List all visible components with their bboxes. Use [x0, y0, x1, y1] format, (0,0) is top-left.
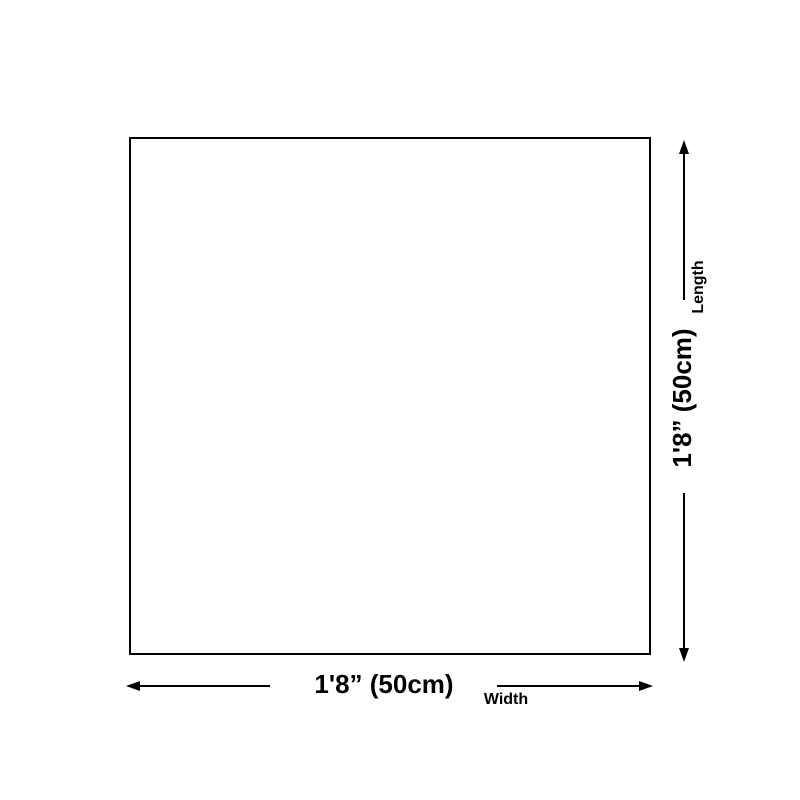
length-axis-label: Length — [689, 252, 709, 322]
arrowhead-left-icon — [126, 681, 140, 691]
arrowhead-down-icon — [679, 648, 689, 662]
width-dimension-line-right — [497, 685, 639, 687]
length-dimension-value: 1'8” (50cm) — [667, 318, 697, 478]
width-dimension-line-left — [140, 685, 270, 687]
width-dimension-value: 1'8” (50cm) — [274, 667, 494, 701]
product-outline-square — [129, 137, 651, 655]
length-dimension-line-upper — [683, 152, 685, 300]
dimension-diagram: Length 1'8” (50cm) 1'8” (50cm) Width — [0, 0, 800, 800]
length-dimension-line-lower — [683, 493, 685, 648]
arrowhead-right-icon — [639, 681, 653, 691]
width-axis-label: Width — [471, 690, 541, 710]
